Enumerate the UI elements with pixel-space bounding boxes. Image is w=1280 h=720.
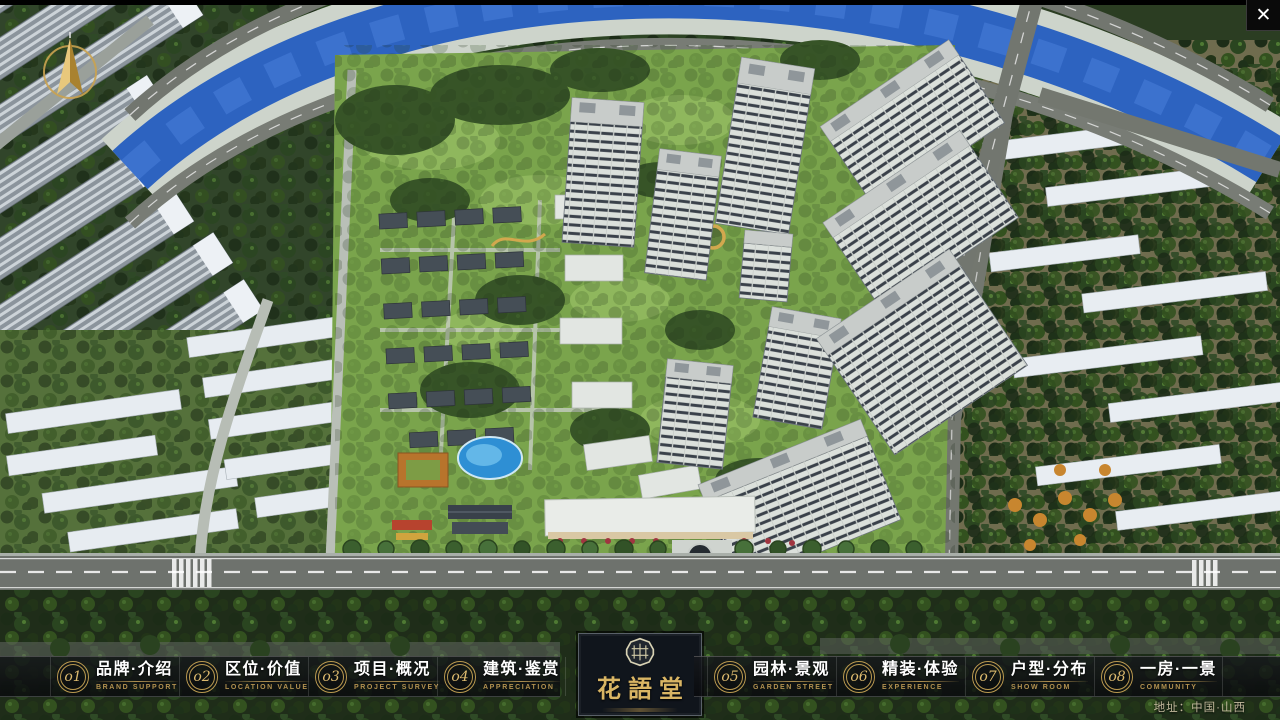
close-button[interactable]: ✕: [1246, 0, 1280, 31]
logo-subtitle-text: [602, 708, 678, 712]
nav-item-garden-landscape[interactable]: o5 园林·景观 GARDEN STREET: [707, 657, 836, 696]
gold-divider: [753, 681, 834, 682]
nav-label-en: PROJECT SURVEY: [354, 684, 440, 691]
nav-number-badge: o3: [315, 661, 347, 693]
nav-item-brand-intro[interactable]: o1 品牌·介绍 BRAND SUPPORT: [50, 657, 179, 696]
nav-label-zh: 精装·体验: [882, 662, 959, 679]
nav-item-architecture[interactable]: o4 建筑·鉴赏 APPRECIATION: [437, 657, 566, 696]
nav-number-badge: o4: [444, 661, 476, 693]
nav-number-badge: o7: [972, 661, 1004, 693]
gold-divider: [1140, 681, 1217, 682]
nav-label-en: LOCATION VALUE: [225, 684, 309, 691]
nav-label-zh: 一房·一景: [1140, 662, 1217, 679]
project-address: 地址：中国·山西: [1154, 699, 1246, 715]
nav-label-en: SHOW ROOM: [1011, 684, 1088, 691]
nav-number-badge: o2: [186, 661, 218, 693]
nav-number-badge: o8: [1101, 661, 1133, 693]
amenity-building: [398, 453, 448, 487]
nav-label-en: APPRECIATION: [483, 684, 560, 691]
close-icon: ✕: [1256, 6, 1272, 25]
presentation-app: ✕ o1 品牌·介绍 BRAND SUPPORT o2 区位·价值 LOCATI…: [0, 0, 1280, 720]
nav-label-en: EXPERIENCE: [882, 684, 959, 691]
nav-label-en: COMMUNITY: [1140, 684, 1217, 691]
nav-label-zh: 项目·概况: [354, 662, 440, 679]
gold-divider: [96, 681, 178, 682]
project-name: 花語堂: [590, 669, 690, 704]
nav-label-zh: 建筑·鉴赏: [483, 662, 560, 679]
nav-number-badge: o6: [843, 661, 875, 693]
bottom-nav-right: o5 园林·景观 GARDEN STREET o6 精装·体验 EXPERIEN…: [694, 656, 1280, 697]
nav-item-location-value[interactable]: o2 区位·价值 LOCATION VALUE: [179, 657, 308, 696]
nav-number-badge: o1: [57, 661, 89, 693]
seal-emblem-icon: [623, 637, 657, 667]
nav-label-en: GARDEN STREET: [753, 684, 834, 691]
nav-label-zh: 区位·价值: [225, 662, 309, 679]
gold-divider: [225, 681, 309, 682]
nav-label-zh: 园林·景观: [753, 662, 834, 679]
gold-divider: [483, 681, 560, 682]
top-letterbox-strip: [0, 0, 1280, 5]
gold-divider: [1011, 681, 1088, 682]
nav-item-one-home-one-view[interactable]: o8 一房·一景 COMMUNITY: [1094, 657, 1223, 696]
nav-label-zh: 户型·分布: [1011, 662, 1088, 679]
bottom-nav-left: o1 品牌·介绍 BRAND SUPPORT o2 区位·价值 LOCATION…: [0, 656, 560, 697]
swimming-pool: [458, 437, 522, 479]
nav-label-en: BRAND SUPPORT: [96, 684, 178, 691]
nav-item-finishing-experience[interactable]: o6 精装·体验 EXPERIENCE: [836, 657, 965, 696]
nav-item-floorplan-distribution[interactable]: o7 户型·分布 SHOW ROOM: [965, 657, 1094, 696]
gold-divider: [354, 681, 440, 682]
nav-item-project-survey[interactable]: o3 项目·概况 PROJECT SURVEY: [308, 657, 437, 696]
nav-label-zh: 品牌·介绍: [96, 662, 178, 679]
nav-number-badge: o5: [714, 661, 746, 693]
project-logo-plaque[interactable]: 花語堂: [578, 633, 702, 716]
gold-divider: [882, 681, 959, 682]
aerial-masterplan-render[interactable]: [0, 0, 1280, 720]
